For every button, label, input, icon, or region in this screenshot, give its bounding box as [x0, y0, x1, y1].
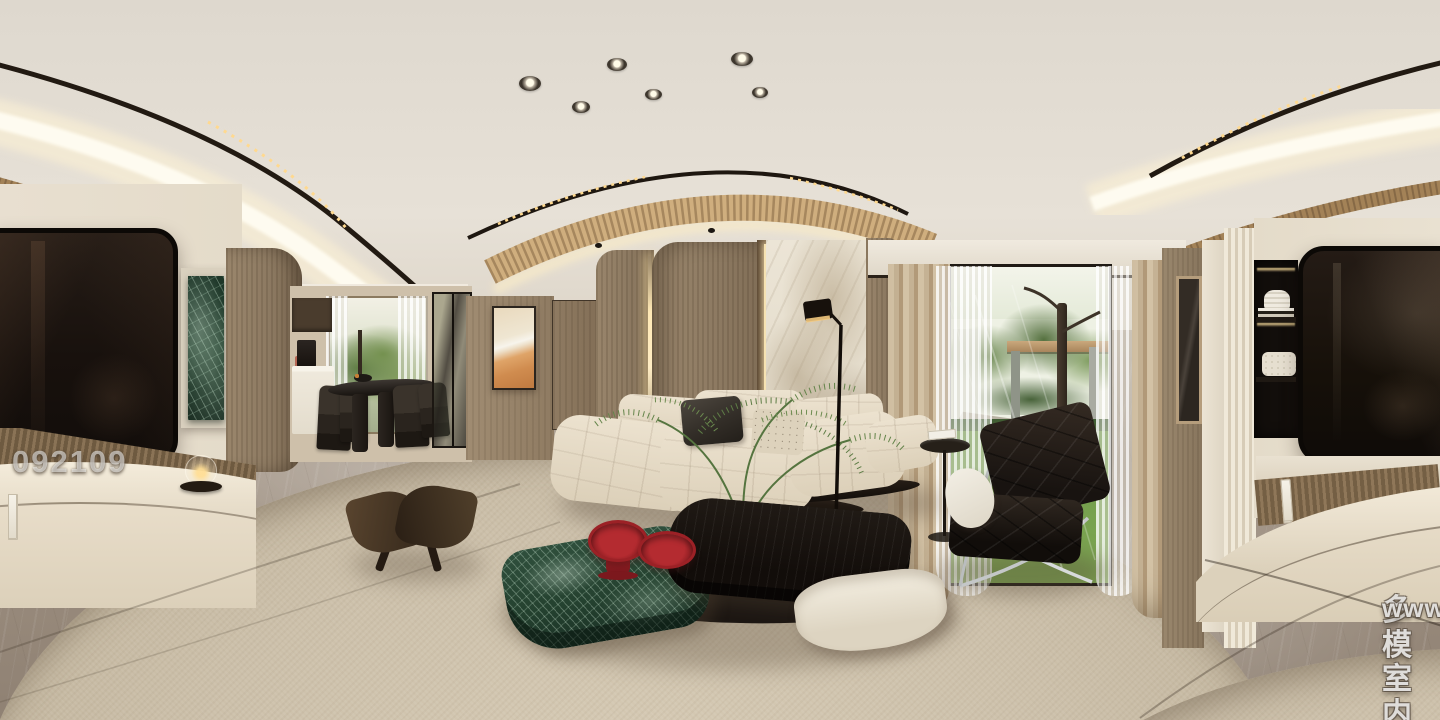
- red-tray: [638, 531, 696, 569]
- floor-lamp: [803, 298, 841, 522]
- red-tray-foot: [598, 571, 638, 580]
- photo-id-watermark: 092109: [12, 444, 127, 480]
- panorama-living-room-render: 092109 多模室内设计网 www.duomowang.com: [0, 0, 1440, 720]
- site-watermark-url: www.duomowang.com: [1382, 594, 1440, 624]
